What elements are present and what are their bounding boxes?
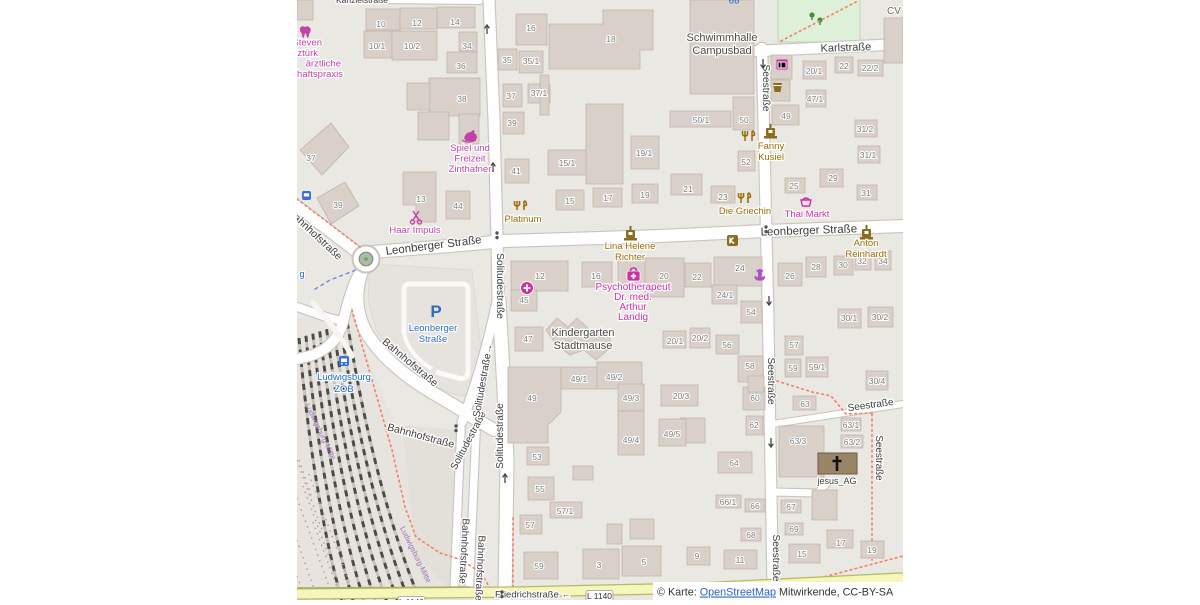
- svg-text:30/2: 30/2: [872, 312, 889, 322]
- svg-text:22: 22: [839, 61, 849, 71]
- svg-text:20/1: 20/1: [667, 336, 684, 346]
- svg-text:67: 67: [786, 502, 796, 512]
- svg-text:35/1: 35/1: [523, 56, 540, 66]
- svg-text:CV: CV: [887, 6, 901, 17]
- svg-text:Spiel und: Spiel und: [450, 143, 490, 154]
- svg-text:49/1: 49/1: [571, 374, 588, 384]
- svg-text:Lina Helene: Lina Helene: [605, 241, 656, 252]
- svg-text:15/1: 15/1: [559, 158, 576, 168]
- svg-text:3: 3: [597, 560, 602, 570]
- svg-text:Ludwigsburg: Ludwigsburg: [317, 372, 371, 383]
- svg-text:5: 5: [642, 557, 647, 567]
- svg-text:36: 36: [456, 61, 466, 71]
- svg-text:63/3: 63/3: [790, 436, 807, 446]
- svg-text:55: 55: [535, 484, 545, 494]
- svg-text:12: 12: [412, 18, 422, 28]
- svg-text:50/1: 50/1: [693, 115, 710, 125]
- svg-text:9: 9: [695, 551, 700, 561]
- svg-text:22/2: 22/2: [862, 63, 879, 73]
- svg-text:18: 18: [606, 34, 616, 44]
- svg-text:20/2: 20/2: [692, 333, 709, 343]
- svg-text:24/1: 24/1: [717, 290, 734, 300]
- svg-text:Haar Impuls: Haar Impuls: [389, 225, 440, 236]
- svg-text:Fanny: Fanny: [758, 141, 785, 152]
- svg-text:14: 14: [450, 17, 460, 27]
- svg-text:50: 50: [739, 115, 749, 125]
- svg-text:20/1: 20/1: [806, 66, 823, 76]
- svg-text:69: 69: [789, 524, 799, 534]
- svg-text:Seestraße: Seestraße: [770, 535, 781, 582]
- svg-text:11: 11: [736, 555, 745, 565]
- svg-text:13: 13: [416, 194, 426, 204]
- svg-text:10: 10: [376, 19, 386, 29]
- svg-text:41: 41: [511, 166, 521, 176]
- svg-text:20/3: 20/3: [673, 391, 690, 401]
- svg-text:15: 15: [565, 196, 575, 206]
- svg-text:47/1: 47/1: [807, 94, 824, 104]
- svg-text:49/5: 49/5: [664, 429, 681, 439]
- svg-text:g: g: [299, 269, 304, 279]
- svg-text:63/1: 63/1: [843, 420, 860, 430]
- svg-text:23: 23: [718, 192, 728, 202]
- svg-text:19/1: 19/1: [636, 148, 653, 158]
- svg-text:16: 16: [591, 271, 601, 281]
- svg-text:Solitudestraße: Solitudestraße: [494, 253, 505, 319]
- svg-text:57/1: 57/1: [557, 506, 574, 516]
- svg-text:63/2: 63/2: [844, 437, 861, 447]
- svg-text:Kindergarten: Kindergarten: [552, 327, 615, 339]
- svg-text:Karlstraße: Karlstraße: [820, 41, 871, 55]
- svg-text:49: 49: [781, 111, 791, 121]
- svg-text:30/1: 30/1: [841, 313, 858, 323]
- svg-text:37/1: 37/1: [531, 88, 548, 98]
- svg-text:47: 47: [523, 334, 533, 344]
- svg-text:44: 44: [453, 201, 463, 211]
- svg-text:Stadtmause: Stadtmause: [554, 340, 613, 352]
- svg-text:56: 56: [722, 340, 732, 350]
- svg-text:Solitudestraße: Solitudestraße: [495, 403, 506, 469]
- svg-text:Seestraße: Seestraße: [873, 435, 884, 481]
- svg-text:Zinthafner: Zinthafner: [449, 164, 492, 175]
- svg-text:Landig: Landig: [618, 312, 648, 323]
- svg-text:25: 25: [789, 181, 799, 191]
- svg-text:45: 45: [519, 295, 529, 305]
- svg-text:62: 62: [749, 420, 759, 430]
- svg-text:17: 17: [836, 538, 846, 548]
- svg-text:39: 39: [507, 118, 517, 128]
- svg-text:Seestraße: Seestraße: [765, 358, 776, 405]
- svg-text:49/2: 49/2: [606, 372, 623, 382]
- svg-text:Straße: Straße: [419, 334, 448, 345]
- svg-text:49/3: 49/3: [623, 393, 640, 403]
- svg-text:29: 29: [828, 173, 838, 183]
- svg-text:Leonberger: Leonberger: [409, 323, 458, 334]
- svg-text:66: 66: [750, 501, 760, 511]
- svg-text:Die Griechin: Die Griechin: [719, 206, 771, 217]
- svg-text:49: 49: [527, 393, 537, 403]
- svg-text:15: 15: [797, 549, 807, 559]
- svg-text:10/1: 10/1: [369, 41, 386, 51]
- svg-text:16: 16: [526, 23, 536, 33]
- svg-text:Reinhardt: Reinhardt: [845, 249, 887, 260]
- svg-text:© Karte: OpenStreetMap Mitwirk: © Karte: OpenStreetMap Mitwirkende, CC-B…: [657, 587, 894, 599]
- svg-text:68: 68: [746, 530, 756, 540]
- svg-text:57: 57: [789, 340, 799, 350]
- svg-text:31/2: 31/2: [857, 124, 874, 134]
- svg-text:31: 31: [861, 188, 871, 198]
- svg-text:Kanzleistraße: Kanzleistraße: [336, 0, 388, 5]
- svg-text:Campusbad: Campusbad: [692, 45, 751, 57]
- svg-text:66: 66: [729, 0, 740, 7]
- svg-text:17: 17: [603, 193, 613, 203]
- svg-text:12: 12: [535, 271, 545, 281]
- svg-text:60: 60: [750, 393, 760, 403]
- svg-text:24: 24: [735, 263, 745, 273]
- svg-text:57: 57: [525, 520, 535, 530]
- svg-text:L 1140: L 1140: [587, 591, 612, 600]
- svg-text:37: 37: [306, 153, 316, 163]
- svg-text:19: 19: [640, 190, 650, 200]
- svg-text:30/4: 30/4: [869, 376, 886, 386]
- svg-text:63: 63: [800, 399, 810, 409]
- svg-text:Thai Markt: Thai Markt: [785, 209, 830, 220]
- svg-text:66/1: 66/1: [720, 497, 737, 507]
- svg-text:35: 35: [502, 55, 512, 65]
- svg-text:19: 19: [867, 545, 877, 555]
- svg-text:49/4: 49/4: [623, 435, 640, 445]
- svg-text:Platinum: Platinum: [505, 214, 542, 225]
- svg-text:34: 34: [462, 41, 472, 51]
- svg-text:30: 30: [838, 260, 848, 270]
- svg-text:Richter: Richter: [615, 252, 645, 263]
- svg-text:59: 59: [534, 561, 544, 571]
- svg-text:59: 59: [788, 363, 798, 373]
- svg-text:21: 21: [683, 184, 693, 194]
- svg-text:Kusiel: Kusiel: [758, 152, 784, 163]
- svg-text:31/1: 31/1: [860, 150, 877, 160]
- svg-text:ärztliche: ärztliche: [306, 59, 341, 70]
- svg-text:58: 58: [745, 361, 755, 371]
- svg-text:20: 20: [659, 271, 669, 281]
- svg-text:P: P: [430, 302, 441, 321]
- svg-text:Friedrichstraße ←: Friedrichstraße ←: [495, 590, 571, 601]
- svg-text:Freizeit: Freizeit: [454, 154, 486, 165]
- svg-text:38: 38: [457, 94, 467, 104]
- svg-text:53: 53: [532, 452, 542, 462]
- svg-text:28: 28: [811, 262, 821, 272]
- svg-text:64: 64: [729, 458, 739, 468]
- svg-text:ZOB: ZOB: [334, 384, 354, 395]
- svg-text:10/2: 10/2: [404, 41, 421, 51]
- svg-text:39: 39: [333, 200, 343, 210]
- svg-text:Seestraße: Seestraße: [760, 65, 771, 112]
- svg-text:22: 22: [692, 272, 702, 282]
- svg-text:jesus_AG: jesus_AG: [816, 476, 856, 486]
- svg-text:59/1: 59/1: [809, 362, 826, 372]
- svg-text:Schwimmhalle: Schwimmhalle: [687, 32, 758, 44]
- svg-text:Anton: Anton: [854, 238, 879, 249]
- svg-text:26: 26: [785, 271, 795, 281]
- svg-text:37: 37: [506, 91, 516, 101]
- svg-text:52: 52: [741, 157, 751, 167]
- svg-text:54: 54: [746, 307, 756, 317]
